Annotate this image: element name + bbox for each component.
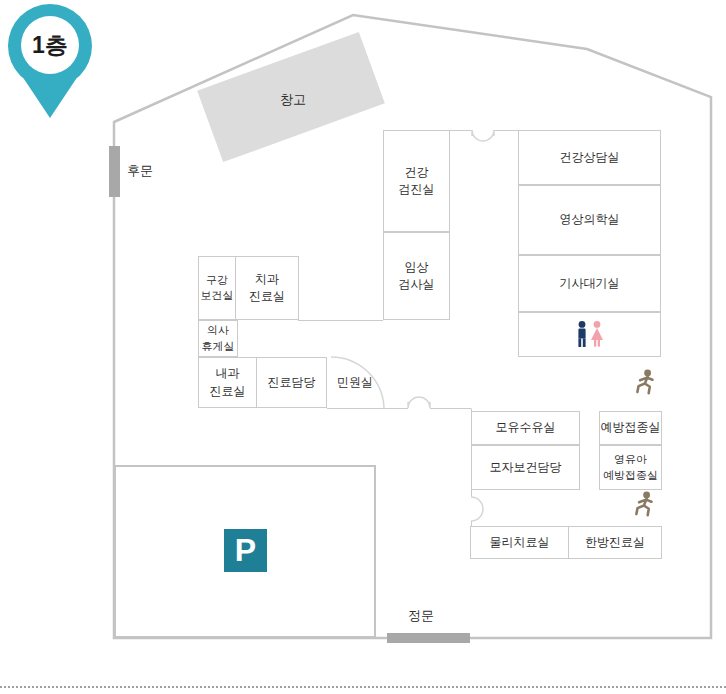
room-health-counseling: 건강상담실 <box>518 130 661 185</box>
floor-plan: 건강 검진실 임상 검사실 건강상담실 영상의학실 기사대기실 <box>0 0 726 694</box>
storage-label: 창고 <box>258 91 328 109</box>
parking-icon: P <box>224 529 267 572</box>
room-maternal-child-health: 모자보건담당 <box>471 445 580 490</box>
restroom-man-woman-icon <box>566 319 614 351</box>
front-gate-label: 정문 <box>408 607 434 625</box>
room-treatment-staff: 진료담당 <box>256 357 327 408</box>
man-icon <box>578 321 585 347</box>
back-gate-bar <box>109 146 120 197</box>
room-nursing: 모유수유실 <box>471 411 580 445</box>
stairs-runner-upper-icon <box>632 369 660 398</box>
room-internal-medicine: 내과 진료실 <box>198 357 257 408</box>
room-oriental-medicine: 한방진료실 <box>568 526 662 559</box>
room-physical-therapy: 물리치료실 <box>470 526 569 559</box>
room-restroom <box>518 312 661 357</box>
room-driver-waiting: 기사대기실 <box>518 255 661 312</box>
room-civil-affairs: 민원실 <box>327 357 383 408</box>
room-doctor-lounge: 의사 휴게실 <box>198 320 238 357</box>
room-oral-health: 구강 보건실 <box>198 256 236 320</box>
room-health-checkup: 건강 검진실 <box>383 130 450 232</box>
map-pin-icon: 1층 <box>0 0 104 126</box>
double-door-top-icon <box>472 130 494 141</box>
room-clinical-lab: 임상 검사실 <box>383 232 450 320</box>
back-gate-label: 후문 <box>127 162 153 180</box>
room-dental-clinic: 치과 진료실 <box>235 256 299 320</box>
dotted-boundary-line <box>0 686 726 688</box>
double-door-left-icon <box>471 497 483 521</box>
woman-icon <box>591 321 603 347</box>
stairs-runner-lower-icon <box>631 491 659 520</box>
parking-area: P <box>114 465 376 638</box>
floor-number-label: 1층 <box>32 32 68 58</box>
room-infant-vaccination: 영유아 예방접종실 <box>599 445 662 490</box>
room-radiology: 영상의학실 <box>518 185 661 255</box>
front-gate-bar <box>387 633 470 643</box>
double-door-middle-icon <box>408 397 430 408</box>
room-vaccination: 예방접종실 <box>599 411 662 445</box>
restroom-icons <box>519 313 660 356</box>
